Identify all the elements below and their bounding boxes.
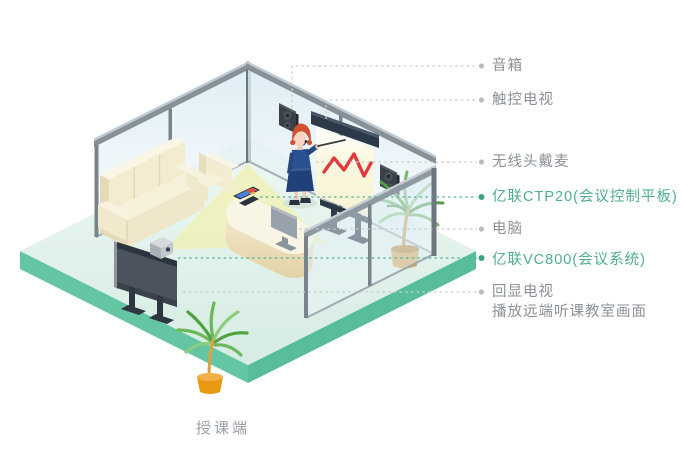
diagram-caption: 授课端: [168, 417, 278, 438]
callout-echo-tv: 回显电视 播放远端听课教室画面: [492, 282, 647, 322]
room-illustration: [0, 0, 682, 460]
callout-computer: 电脑: [492, 219, 523, 239]
callout-speaker: 音箱: [492, 56, 523, 76]
callout-yealink-vc800: 亿联VC800(会议系统): [492, 250, 646, 270]
isometric-room-diagram: 音箱 触控电视 无线头戴麦 亿联CTP20(会议控制平板) 电脑 亿联VC800…: [0, 0, 682, 460]
callout-echo-tv-line2: 播放远端听课教室画面: [492, 302, 647, 322]
callout-wireless-headset-mic: 无线头戴麦: [492, 152, 570, 172]
callout-touch-tv: 触控电视: [492, 90, 554, 110]
callout-yealink-ctp20: 亿联CTP20(会议控制平板): [492, 187, 678, 207]
callout-echo-tv-line1: 回显电视: [492, 282, 647, 302]
